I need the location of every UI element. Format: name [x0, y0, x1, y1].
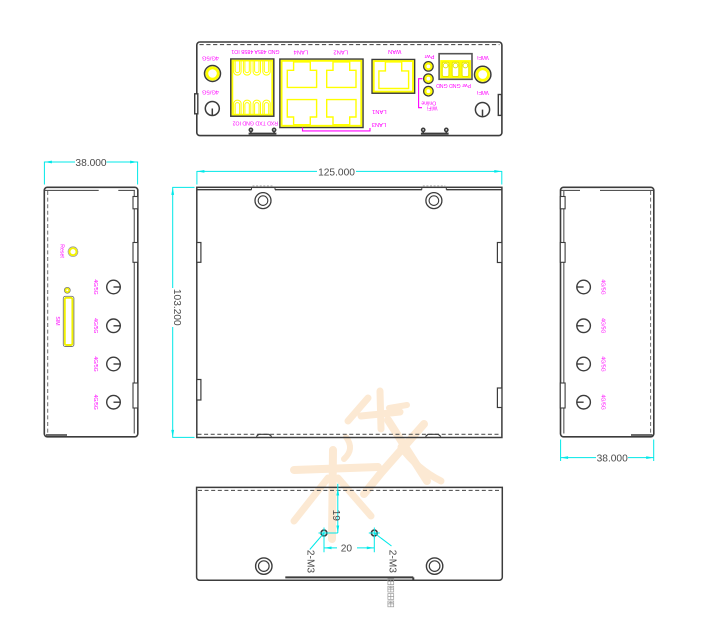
- svg-text:4G/5G: 4G/5G: [92, 356, 98, 371]
- svg-text:20: 20: [341, 544, 353, 555]
- svg-text:38.000: 38.000: [597, 454, 628, 465]
- svg-text:4G/5G: 4G/5G: [600, 395, 606, 410]
- svg-text:Reset: Reset: [59, 244, 65, 258]
- svg-text:WiFi: WiFi: [477, 89, 489, 95]
- svg-text:SIM: SIM: [54, 316, 60, 325]
- svg-text:WiFi: WiFi: [477, 54, 489, 60]
- svg-text:WAN: WAN: [388, 48, 401, 54]
- svg-text:38.000: 38.000: [75, 158, 106, 169]
- svg-text:LAN4: LAN4: [293, 48, 308, 54]
- svg-text:125.000: 125.000: [318, 167, 355, 178]
- svg-text:GND 485A 485B IO1: GND 485A 485B IO1: [231, 48, 279, 54]
- svg-text:4G/5G: 4G/5G: [92, 279, 98, 294]
- svg-text:LAN2: LAN2: [333, 48, 348, 54]
- svg-text:4G/5G: 4G/5G: [600, 356, 606, 371]
- svg-text:2-M3: 2-M3: [305, 550, 316, 574]
- svg-text:103.200: 103.200: [171, 289, 182, 326]
- svg-text:4G/5G: 4G/5G: [600, 279, 606, 294]
- svg-text:4G/5G: 4G/5G: [201, 54, 219, 60]
- svg-text:Online: Online: [421, 99, 436, 105]
- svg-text:4G/5G: 4G/5G: [600, 318, 606, 333]
- svg-text:Pwr GND GND: Pwr GND GND: [436, 82, 471, 88]
- svg-text:4G/5G: 4G/5G: [92, 395, 98, 410]
- svg-text:LAN3: LAN3: [372, 121, 387, 127]
- svg-text:LAN1: LAN1: [372, 108, 387, 114]
- svg-text:2-M3: 2-M3: [386, 550, 397, 574]
- svg-text:WiFi: WiFi: [427, 105, 437, 111]
- svg-text:RXD TXD GND IO2: RXD TXD GND IO2: [232, 119, 278, 125]
- svg-text:Pwr: Pwr: [424, 53, 434, 59]
- svg-text:4G/5G: 4G/5G: [92, 318, 98, 333]
- svg-text:19: 19: [330, 510, 341, 522]
- svg-text:4G/5G: 4G/5G: [201, 88, 219, 94]
